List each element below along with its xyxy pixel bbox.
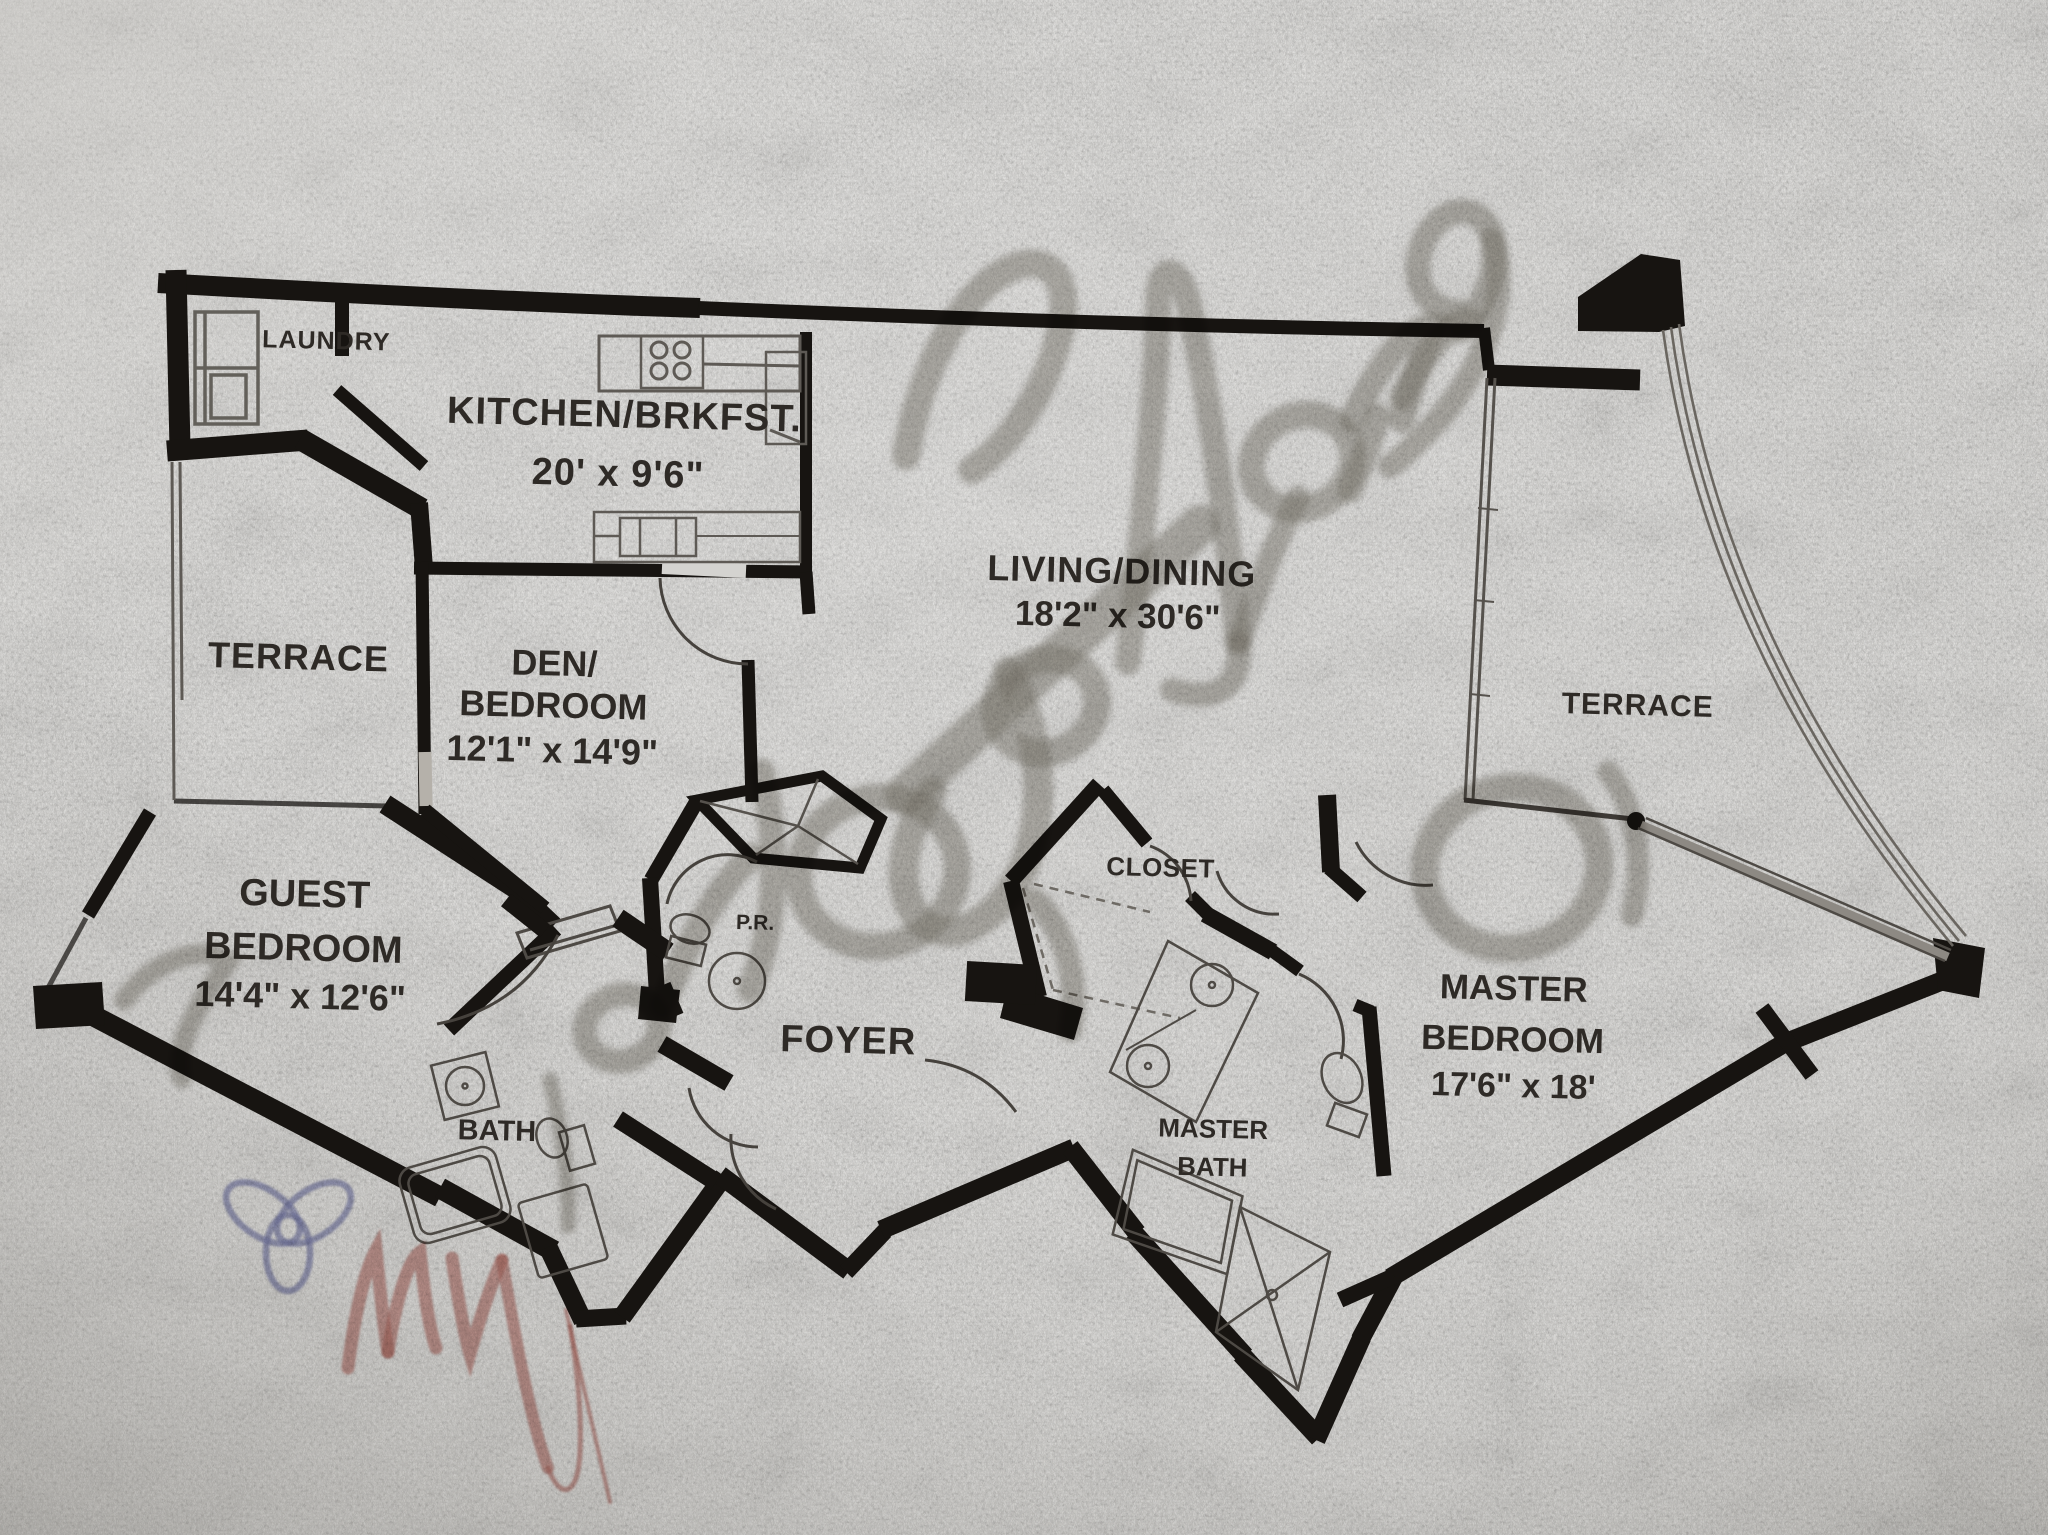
svg-text:BEDROOM: BEDROOM bbox=[459, 682, 648, 728]
svg-text:MASTER: MASTER bbox=[1158, 1112, 1269, 1145]
svg-text:CLOSET: CLOSET bbox=[1106, 851, 1215, 884]
svg-text:12'1" x 14'9": 12'1" x 14'9" bbox=[446, 727, 658, 773]
svg-text:TERRACE: TERRACE bbox=[208, 634, 390, 679]
svg-text:BATH: BATH bbox=[457, 1114, 536, 1148]
svg-text:BEDROOM: BEDROOM bbox=[1421, 1018, 1605, 1061]
svg-text:MASTER: MASTER bbox=[1439, 967, 1588, 1010]
svg-text:FOYER: FOYER bbox=[780, 1018, 917, 1063]
svg-text:20' x 9'6": 20' x 9'6" bbox=[531, 451, 705, 497]
svg-text:DEN/: DEN/ bbox=[511, 641, 598, 684]
svg-text:TERRACE: TERRACE bbox=[1561, 687, 1714, 724]
svg-text:KITCHEN/BRKFST.: KITCHEN/BRKFST. bbox=[447, 390, 803, 441]
svg-text:LAUNDRY: LAUNDRY bbox=[262, 325, 391, 356]
svg-text:GUEST: GUEST bbox=[239, 872, 371, 917]
svg-text:17'6" x 18': 17'6" x 18' bbox=[1431, 1065, 1597, 1107]
svg-text:BATH: BATH bbox=[1177, 1151, 1248, 1183]
